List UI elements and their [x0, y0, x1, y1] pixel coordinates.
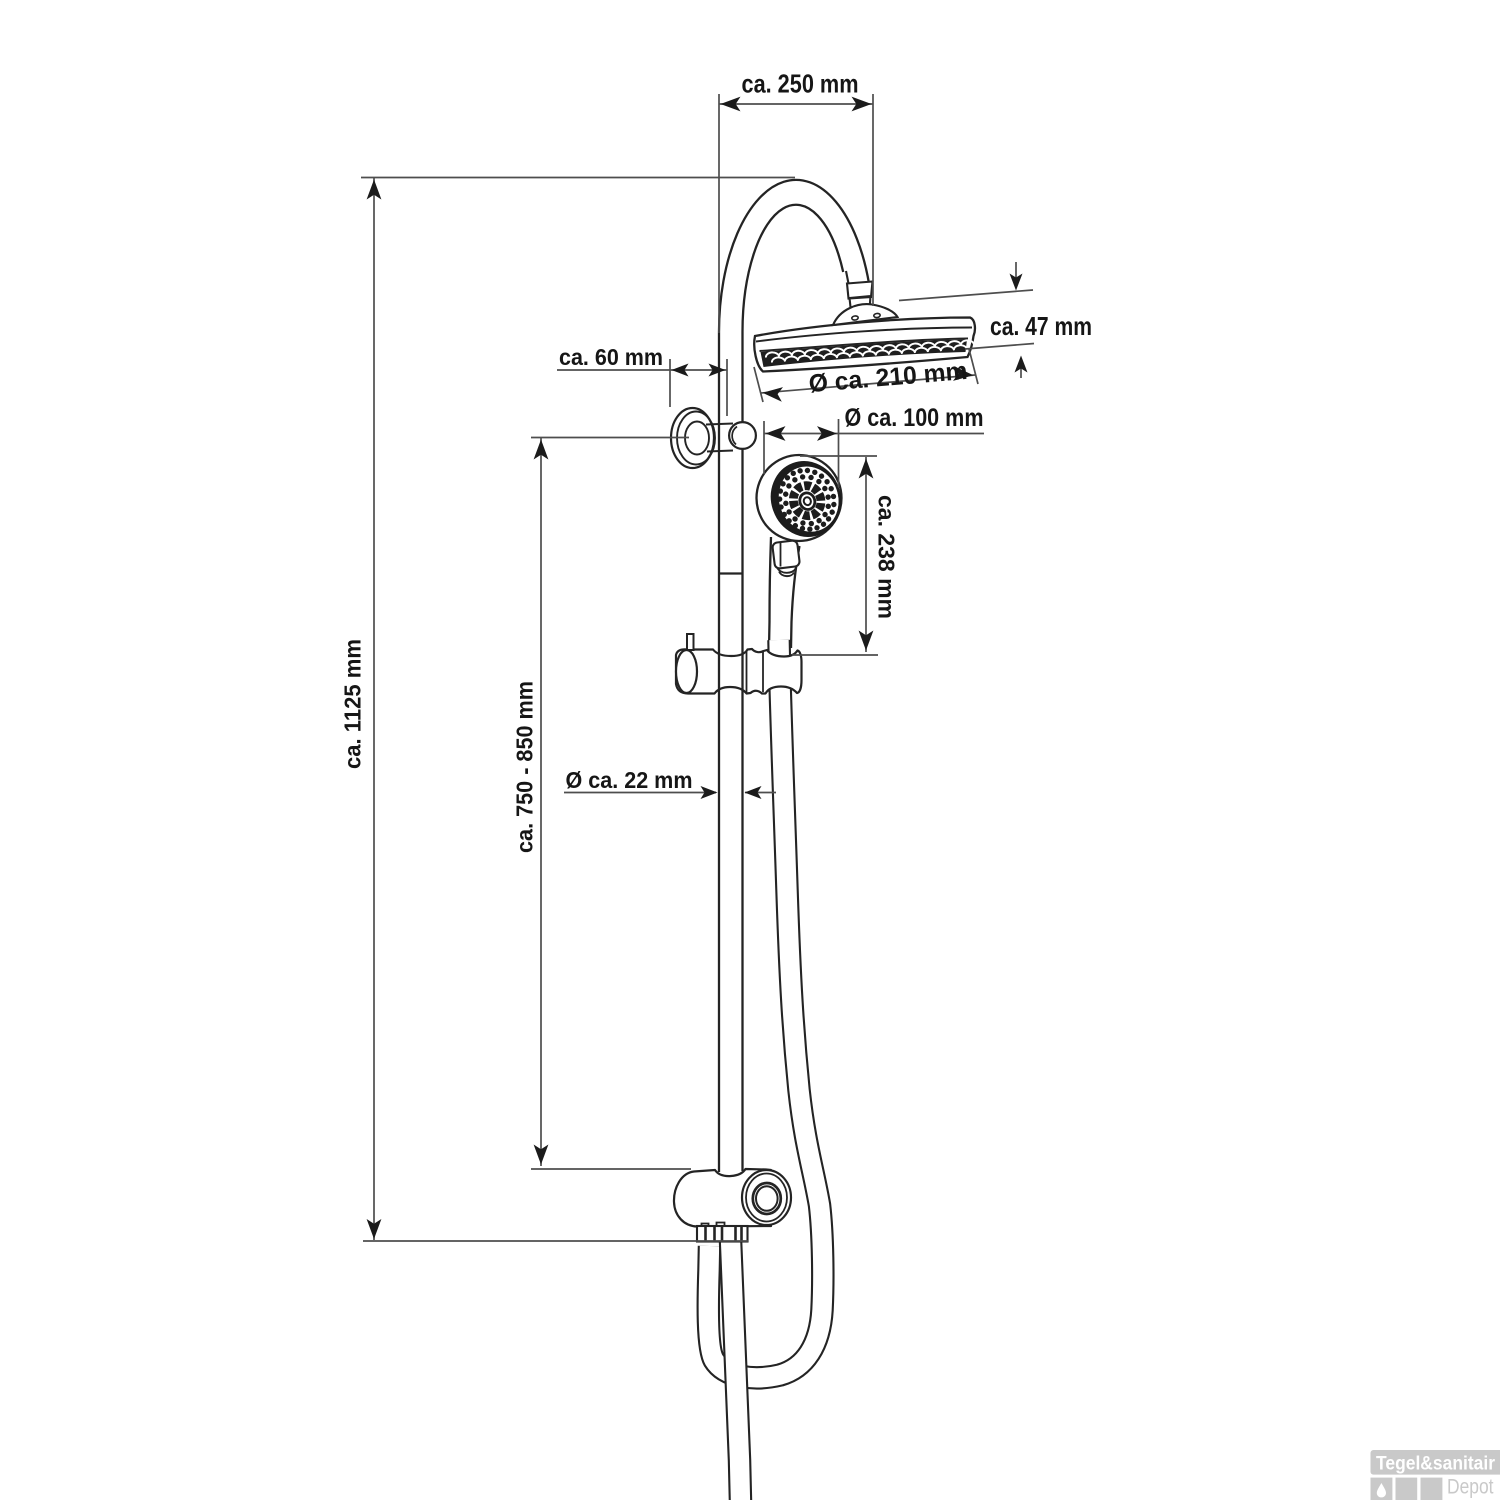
svg-text:ca. 60 mm: ca. 60 mm — [559, 344, 663, 370]
svg-text:Tegel&sanitair: Tegel&sanitair — [1376, 1453, 1495, 1475]
svg-text:ca. 750 - 850 mm: ca. 750 - 850 mm — [512, 681, 538, 853]
svg-text:ca. 238 mm: ca. 238 mm — [874, 495, 900, 619]
svg-text:Depot: Depot — [1447, 1476, 1494, 1499]
svg-text:ca. 47 mm: ca. 47 mm — [990, 311, 1092, 341]
svg-text:Ø ca. 22 mm: Ø ca. 22 mm — [566, 767, 693, 793]
svg-text:Ø ca. 100 mm: Ø ca. 100 mm — [845, 404, 984, 432]
svg-text:ca. 250 mm: ca. 250 mm — [742, 69, 859, 99]
svg-text:ca. 1125 mm: ca. 1125 mm — [340, 639, 366, 769]
